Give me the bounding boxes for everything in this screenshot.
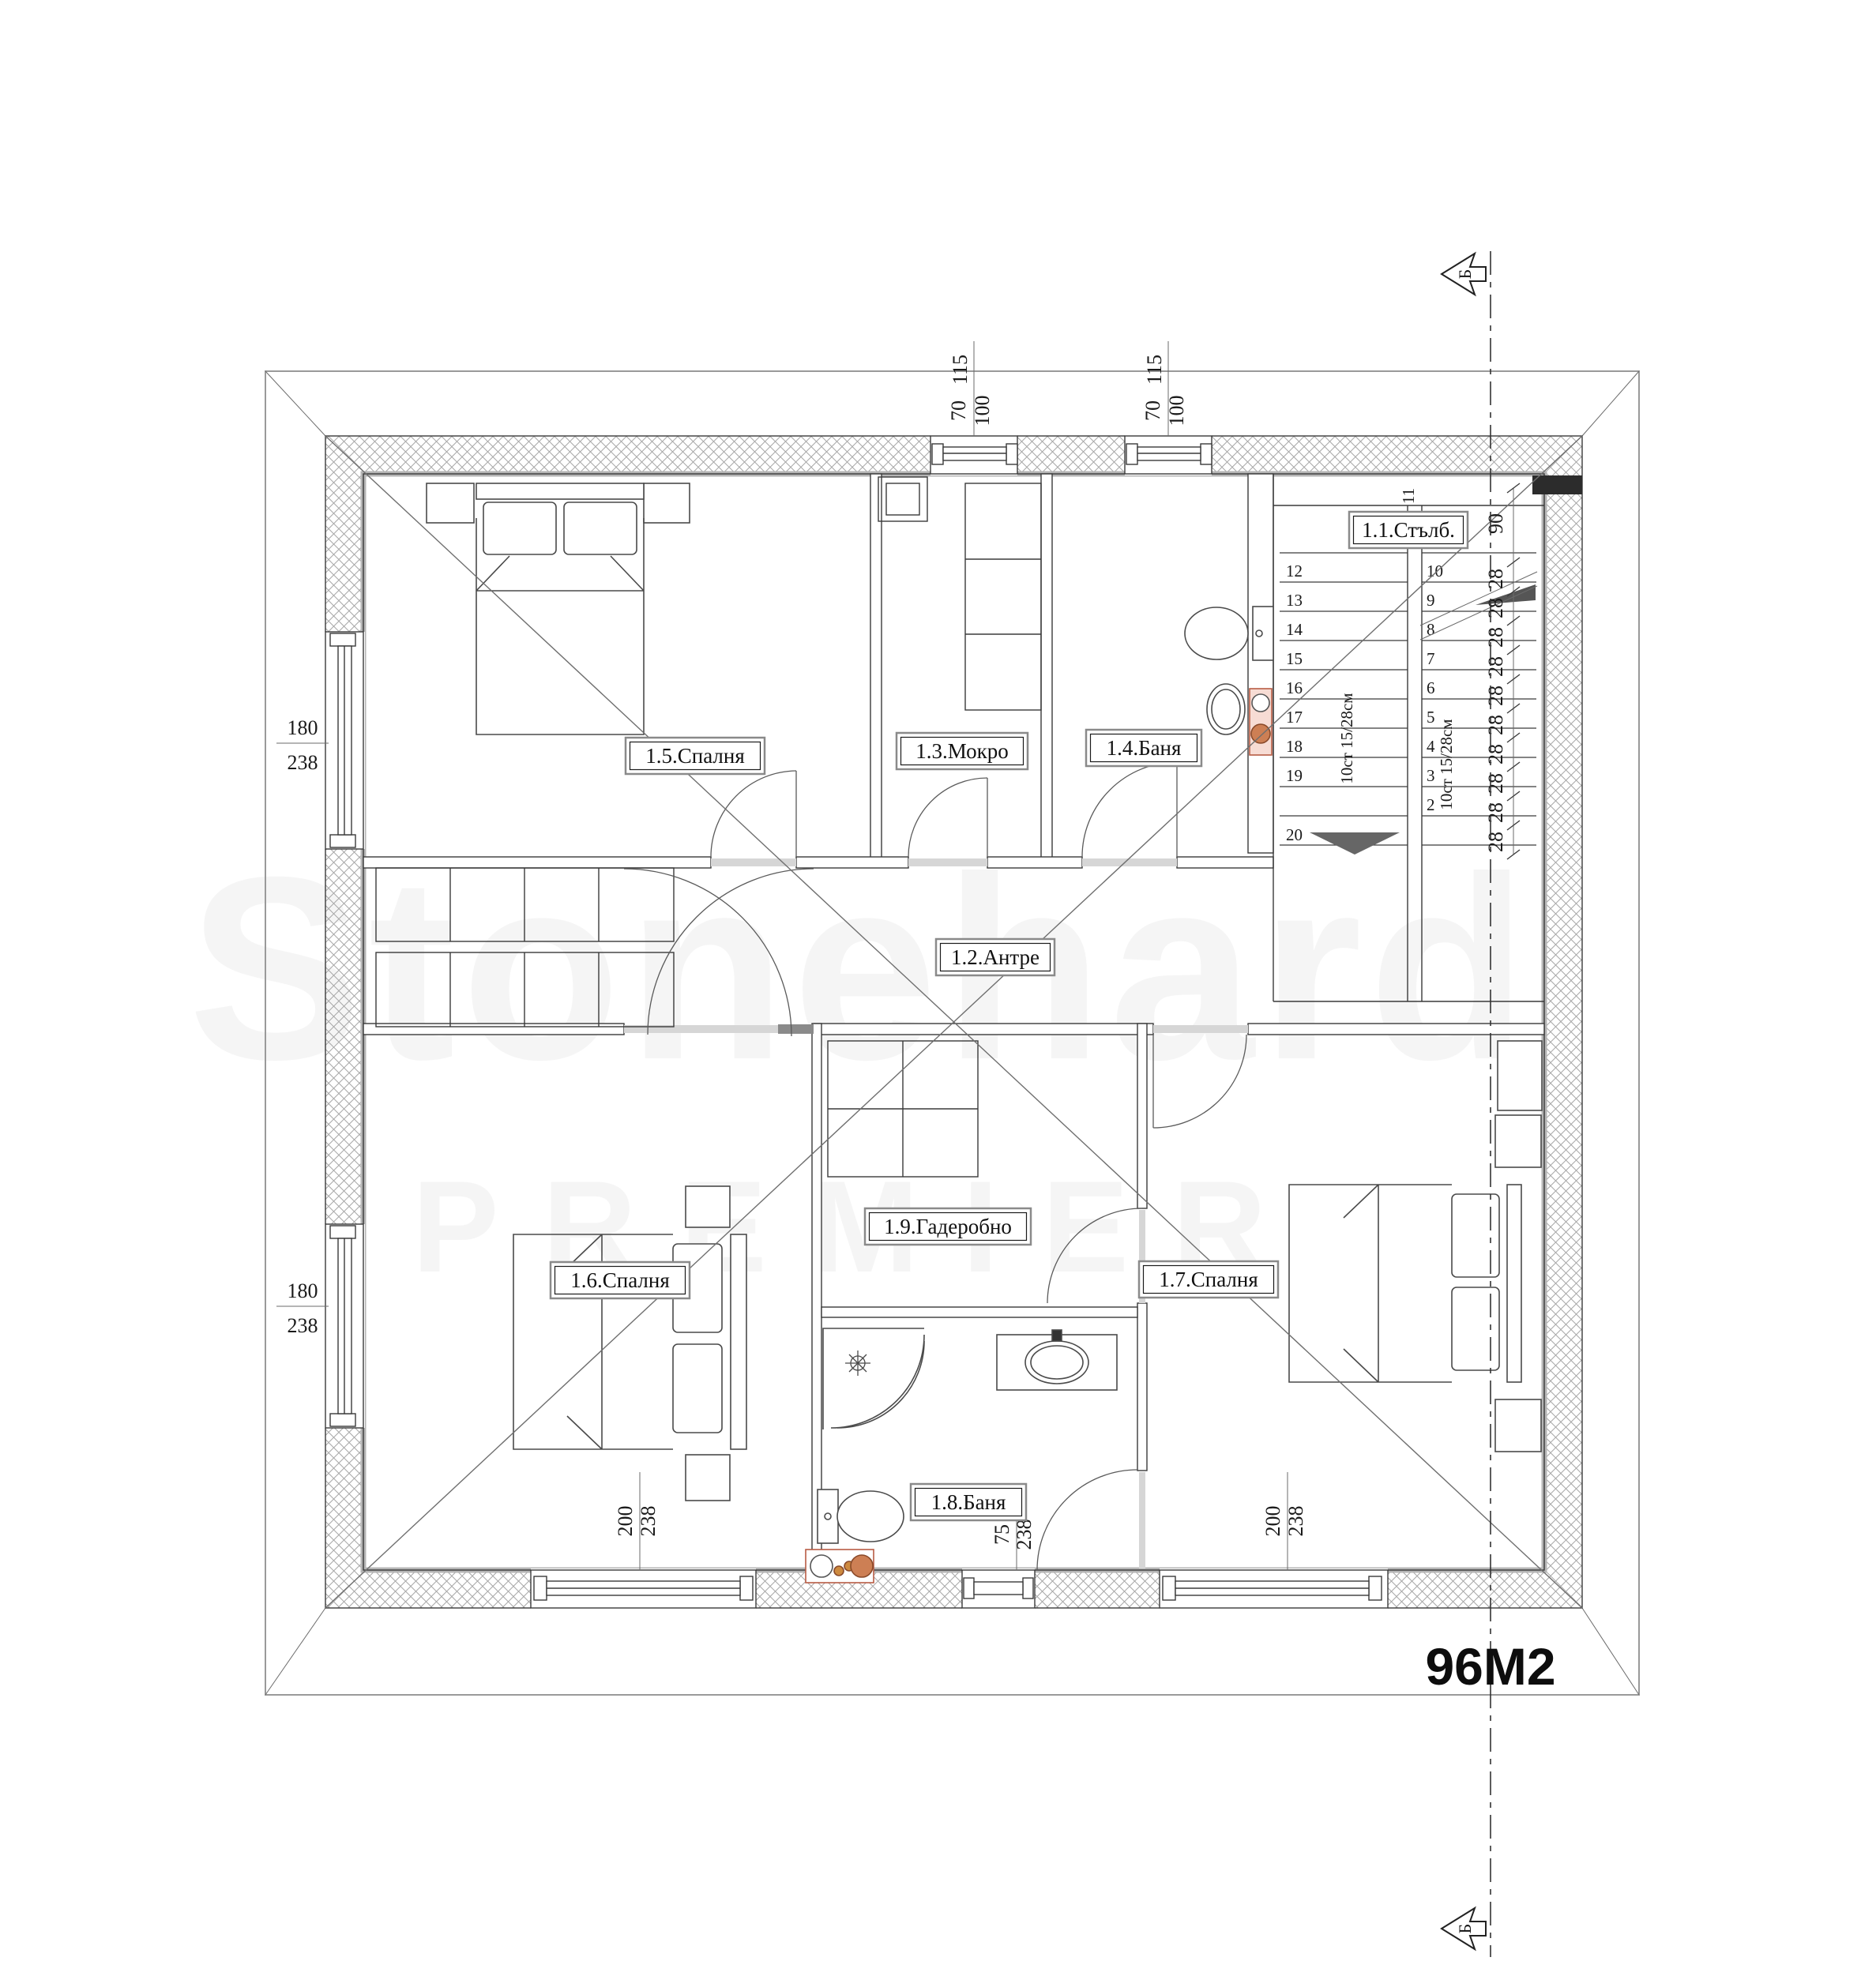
dim-riser: 28 xyxy=(1484,686,1507,706)
svg-text:1.5.Спалня: 1.5.Спалня xyxy=(645,744,745,768)
dim-riser: 28 xyxy=(1484,656,1507,677)
section-letter: Б xyxy=(1455,269,1475,280)
flight-note-right: 10ст 15/28см xyxy=(1437,719,1456,810)
door-room18 xyxy=(1037,1470,1137,1570)
window-top-2 xyxy=(1125,434,1212,475)
dim-left2-height: 238 xyxy=(288,1314,318,1337)
room-label-bath1: 1.4.Баня xyxy=(1086,730,1201,766)
tread-number: 5 xyxy=(1427,708,1435,727)
dim-left1-height: 238 xyxy=(288,751,318,774)
dim-top1-width: 115 xyxy=(949,355,972,385)
window-left-2 xyxy=(324,1224,365,1428)
window-top-1 xyxy=(930,434,1017,475)
svg-text:1.8.Баня: 1.8.Баня xyxy=(931,1490,1006,1514)
tap-icon xyxy=(1052,1330,1062,1341)
nightstand-icon xyxy=(1495,1399,1541,1452)
dim-riser: 28 xyxy=(1484,802,1507,823)
dim-left2-width: 180 xyxy=(288,1279,318,1302)
tread-number: 14 xyxy=(1286,620,1303,639)
tread-number: 20 xyxy=(1286,825,1303,844)
tread-number: 3 xyxy=(1427,766,1435,785)
tread-number: 19 xyxy=(1286,766,1303,785)
pipe-icon xyxy=(1252,694,1269,712)
tread-number: 9 xyxy=(1427,591,1435,610)
tread-number: 6 xyxy=(1427,678,1435,697)
bath2-fixtures xyxy=(806,1328,1117,1583)
basin-icon xyxy=(851,1555,873,1577)
tread-number: 10 xyxy=(1427,562,1443,580)
window-bottom-right xyxy=(1160,1568,1388,1610)
dim-bot1-height: 238 xyxy=(637,1506,660,1537)
dim-bot2-width: 75 xyxy=(991,1524,1013,1545)
nightstand-icon xyxy=(427,483,474,523)
room-label-stairs: 1.1.Стълб. xyxy=(1349,512,1468,548)
area-label: 96М2 xyxy=(1425,1637,1555,1696)
pillow-icon xyxy=(1452,1194,1499,1277)
shower-head-icon xyxy=(845,1351,870,1376)
section-marker-bottom: Б xyxy=(1442,1908,1486,1949)
pillow-icon xyxy=(673,1344,722,1433)
shower-walls xyxy=(823,1328,924,1429)
dim-bot2-height: 238 xyxy=(1013,1520,1036,1550)
dim-riser: 28 xyxy=(1484,744,1507,764)
dim-top2-height: 100 xyxy=(1165,396,1188,426)
tread-number: 18 xyxy=(1286,737,1303,756)
shower-icon xyxy=(831,1335,924,1428)
tread-number: 7 xyxy=(1427,649,1435,668)
room-label-bed3: 1.7.Спалня xyxy=(1139,1261,1278,1298)
bed-room15-icon xyxy=(427,483,690,734)
room-label-bath2: 1.8.Баня xyxy=(911,1484,1026,1520)
window-left-1 xyxy=(324,632,365,849)
dim-bot3-height: 238 xyxy=(1284,1506,1307,1537)
pillow-icon xyxy=(1452,1287,1499,1370)
nightstand-icon xyxy=(1495,1115,1541,1167)
section-marker-top: Б xyxy=(1442,254,1486,295)
tread-number-11: 11 xyxy=(1399,488,1418,504)
room-label-hall: 1.2.Антре xyxy=(936,939,1055,975)
dim-left1-width: 180 xyxy=(288,716,318,739)
toilet-bowl-icon xyxy=(837,1491,904,1542)
svg-text:1.1.Стълб.: 1.1.Стълб. xyxy=(1362,518,1455,542)
room-label-wardrobe: 1.9.Гадеробно xyxy=(865,1208,1031,1245)
tread-number: 16 xyxy=(1286,678,1303,697)
room-label-wet: 1.3.Мокро xyxy=(897,733,1028,769)
toilet-bowl-icon xyxy=(1185,607,1248,659)
dim-bot1-width: 200 xyxy=(614,1506,637,1537)
svg-text:1.2.Антре: 1.2.Антре xyxy=(951,945,1040,969)
room-label-bed1: 1.5.Спалня xyxy=(626,738,765,774)
dim-riser: 28 xyxy=(1484,773,1507,794)
floor-plan-drawing: Stonehard PREMIER xyxy=(0,0,1876,1976)
wardrobe-icon xyxy=(1498,1041,1542,1110)
nightstand-icon xyxy=(686,1455,730,1501)
lintel-mark xyxy=(1532,475,1582,494)
svg-text:1.6.Спалня: 1.6.Спалня xyxy=(570,1268,670,1292)
watermark: Stonehard PREMIER xyxy=(188,822,1534,1299)
dim-riser: 28 xyxy=(1484,715,1507,735)
svg-text:1.9.Гадеробно: 1.9.Гадеробно xyxy=(884,1215,1012,1238)
svg-text:1.7.Спалня: 1.7.Спалня xyxy=(1159,1268,1258,1291)
section-letter: Б xyxy=(1455,1924,1475,1934)
dim-bot3-width: 200 xyxy=(1261,1506,1284,1537)
tread-number: 12 xyxy=(1286,562,1303,580)
basin-icon xyxy=(810,1555,833,1577)
room-label-bed2: 1.6.Спалня xyxy=(551,1262,690,1298)
dim-top2-sill: 70 xyxy=(1141,400,1164,421)
double-door-leaf-mark xyxy=(778,1024,814,1034)
pillow-icon xyxy=(483,502,556,554)
svg-text:1.3.Мокро: 1.3.Мокро xyxy=(915,739,1008,763)
dim-top1-sill: 70 xyxy=(947,400,970,421)
flight-note-left: 10ст 15/28см xyxy=(1337,693,1356,783)
dim-stair-top: 90 xyxy=(1484,513,1507,534)
dim-top2-width: 115 xyxy=(1143,355,1166,385)
nightstand-icon xyxy=(686,1186,730,1227)
tread-number: 15 xyxy=(1286,649,1303,668)
pillow-icon xyxy=(564,502,637,554)
svg-text:1.4.Баня: 1.4.Баня xyxy=(1107,736,1182,760)
dim-riser: 28 xyxy=(1484,569,1507,589)
tread-number: 4 xyxy=(1427,737,1435,756)
wet-room-units xyxy=(878,477,1041,710)
dim-riser: 28 xyxy=(1484,832,1507,852)
tread-number: 13 xyxy=(1286,591,1303,610)
nightstand-icon xyxy=(644,483,690,523)
dim-riser: 28 xyxy=(1484,627,1507,648)
dim-riser: 28 xyxy=(1484,598,1507,618)
window-bottom-middle xyxy=(962,1568,1035,1610)
tread-number: 2 xyxy=(1427,795,1435,814)
dim-top1-height: 100 xyxy=(971,396,994,426)
boiler-icon xyxy=(1251,724,1270,743)
window-bottom-left xyxy=(531,1568,756,1610)
floor-plan-sheet: Stonehard PREMIER xyxy=(0,0,1876,1976)
